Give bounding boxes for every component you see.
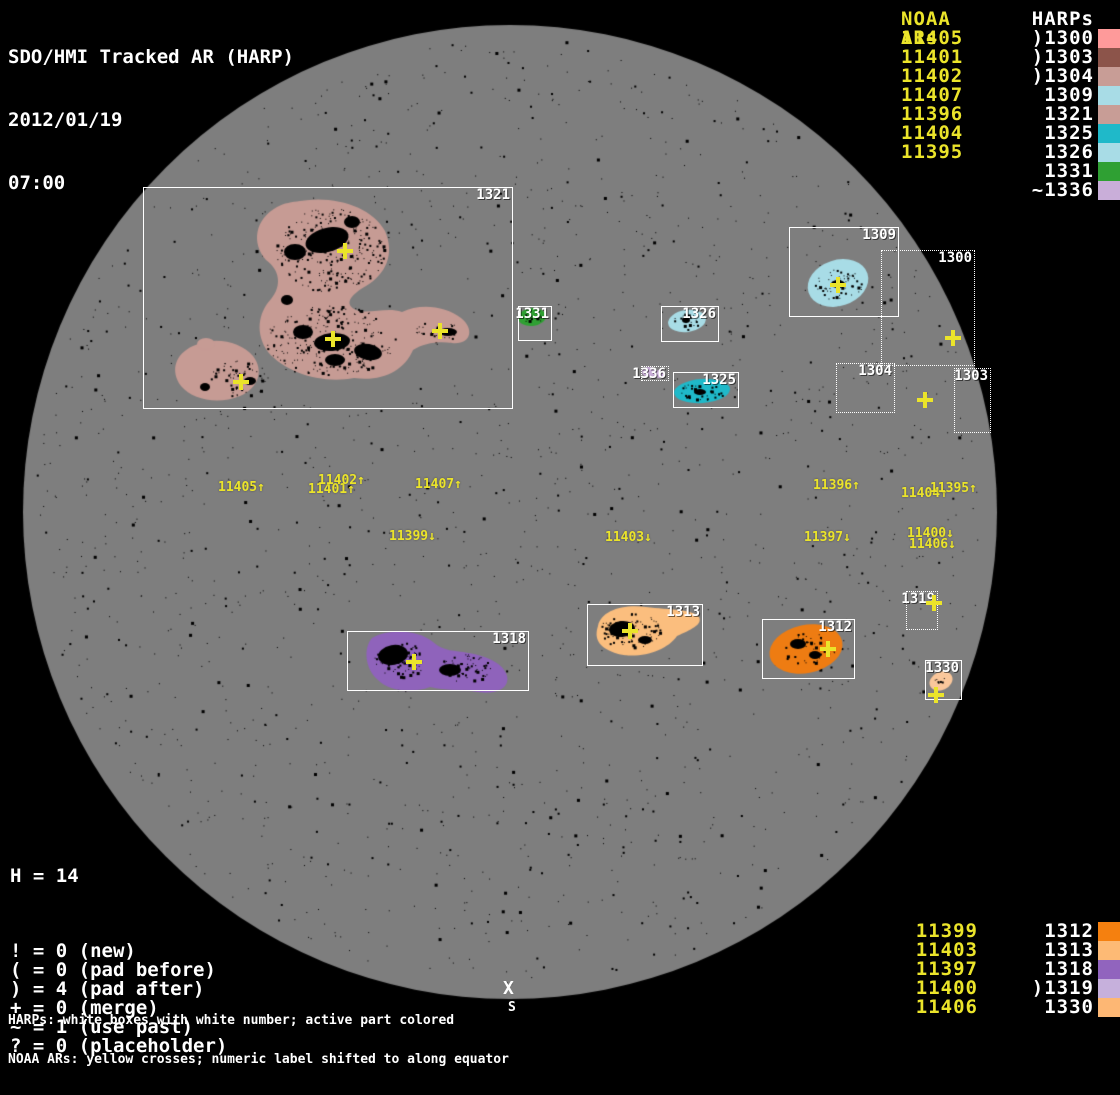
legend-swatch-cell bbox=[1094, 143, 1120, 162]
noaa-cross-icon bbox=[622, 623, 638, 639]
legend-harp-number: ~1336 bbox=[988, 181, 1094, 200]
legend-noaa-number bbox=[884, 181, 988, 200]
harp-color-swatch bbox=[1098, 124, 1120, 143]
legend-swatch-cell bbox=[1094, 67, 1120, 86]
harp-box-label: 1318 bbox=[492, 633, 526, 646]
legend-swatch-cell bbox=[1094, 181, 1120, 200]
harp-box-1303: 1303 bbox=[954, 368, 991, 433]
caption-block: HARPs: white boxes with white number; ac… bbox=[8, 988, 509, 1092]
harp-box-1331: 1331 bbox=[518, 306, 552, 341]
harp-box-label: 1309 bbox=[862, 229, 896, 242]
harp-box-label: 1325 bbox=[702, 374, 736, 387]
harp-box-label: 1313 bbox=[666, 606, 700, 619]
noaa-cross-icon bbox=[233, 374, 249, 390]
legend-swatch-cell bbox=[1094, 124, 1120, 143]
noaa-map-label: 11396↑ bbox=[813, 479, 860, 492]
harp-box-label: 1312 bbox=[818, 621, 852, 634]
noaa-cross-icon bbox=[926, 595, 942, 611]
harp-box-1304: 1304 bbox=[836, 363, 895, 413]
legend-swatch-cell bbox=[1094, 922, 1120, 941]
legend-swatch-cell bbox=[1094, 960, 1120, 979]
harp-count: H = 14 bbox=[10, 867, 227, 886]
noaa-cross-icon bbox=[917, 392, 933, 408]
noaa-cross-icon bbox=[337, 243, 353, 259]
harp-color-swatch bbox=[1098, 162, 1120, 181]
noaa-map-label: 11399↓ bbox=[389, 530, 436, 543]
harp-box-1336: 1336 bbox=[641, 366, 669, 381]
legend-swatch-cell bbox=[1094, 941, 1120, 960]
legend-swatch-cell bbox=[1094, 998, 1120, 1017]
harp-color-swatch bbox=[1098, 181, 1120, 200]
noaa-map-label: 11405↑ bbox=[218, 481, 265, 494]
caption-noaa: NOAA ARs: yellow crosses; numeric label … bbox=[8, 1053, 509, 1066]
harp-color-swatch bbox=[1098, 48, 1120, 67]
top-right-legend: NOAA ARs HARPs 11405)130011401)130311402… bbox=[884, 10, 1120, 200]
legend-header-spacer bbox=[1094, 10, 1120, 29]
harp-color-swatch bbox=[1098, 922, 1120, 941]
noaa-map-label: 11407↑ bbox=[415, 478, 462, 491]
harp-color-swatch bbox=[1098, 960, 1120, 979]
south-pole-label: S bbox=[508, 1001, 516, 1014]
legend-noaa-number bbox=[884, 162, 988, 181]
noaa-map-label: 11403↓ bbox=[605, 531, 652, 544]
noaa-cross-icon bbox=[325, 331, 341, 347]
harp-box-1318: 1318 bbox=[347, 631, 529, 691]
page-title: SDO/HMI Tracked AR (HARP) bbox=[8, 47, 294, 68]
harp-box-label: 1303 bbox=[954, 370, 988, 383]
legend-swatch-cell bbox=[1094, 105, 1120, 124]
noaa-cross-icon bbox=[830, 277, 846, 293]
harp-color-swatch bbox=[1098, 979, 1120, 998]
legend-swatch-cell bbox=[1094, 162, 1120, 181]
harp-box-1312: 1312 bbox=[762, 619, 855, 679]
harp-box-1325: 1325 bbox=[673, 372, 739, 408]
caption-harps: HARPs: white boxes with white number; ac… bbox=[8, 1014, 509, 1027]
harp-box-1313: 1313 bbox=[587, 604, 703, 666]
noaa-cross-icon bbox=[928, 687, 944, 703]
harp-color-swatch bbox=[1098, 941, 1120, 960]
south-pole-x-icon: X bbox=[503, 981, 514, 997]
title-block: SDO/HMI Tracked AR (HARP) 2012/01/19 07:… bbox=[8, 5, 294, 236]
harp-color-swatch bbox=[1098, 29, 1120, 48]
harp-box-label: 1300 bbox=[938, 252, 972, 265]
harp-box-label: 1330 bbox=[925, 662, 959, 675]
harp-box-label: 1304 bbox=[858, 365, 892, 378]
harp-color-swatch bbox=[1098, 67, 1120, 86]
legend-swatch-cell bbox=[1094, 86, 1120, 105]
legend-swatch-cell bbox=[1094, 979, 1120, 998]
noaa-cross-icon bbox=[945, 330, 961, 346]
date-label: 2012/01/19 bbox=[8, 110, 294, 131]
harp-color-swatch bbox=[1098, 998, 1120, 1017]
noaa-map-label: 11406↓ bbox=[909, 538, 956, 551]
legend-swatch-cell bbox=[1094, 29, 1120, 48]
noaa-cross-icon bbox=[406, 654, 422, 670]
noaa-map-label: 11402↑ bbox=[318, 474, 365, 487]
legend-noaa-number: 11395 bbox=[884, 143, 988, 162]
bottom-right-legend: 11399131211403131311397131811400)1319114… bbox=[884, 922, 1120, 1017]
harp-box-label: 1336 bbox=[632, 368, 666, 381]
noaa-cross-icon bbox=[432, 323, 448, 339]
time-label: 07:00 bbox=[8, 173, 294, 194]
harp-box-1326: 1326 bbox=[661, 306, 719, 342]
harp-box-label: 1331 bbox=[515, 308, 549, 321]
noaa-map-label: 11397↓ bbox=[804, 531, 851, 544]
noaa-map-label: 11395↑ bbox=[930, 482, 977, 495]
harp-color-swatch bbox=[1098, 86, 1120, 105]
legend-harp-number: 1330 bbox=[988, 998, 1094, 1017]
noaa-cross-icon bbox=[820, 641, 836, 657]
harp-color-swatch bbox=[1098, 143, 1120, 162]
harp-color-swatch bbox=[1098, 105, 1120, 124]
harp-box-label: 1321 bbox=[476, 189, 510, 202]
legend-noaa-number: 11406 bbox=[884, 998, 988, 1017]
harp-box-1300: 1300 bbox=[881, 250, 975, 366]
harp-box-label: 1326 bbox=[682, 308, 716, 321]
legend-swatch-cell bbox=[1094, 48, 1120, 67]
harp-tracking-view: 1321130913001304130313311326133613251318… bbox=[0, 0, 1120, 1024]
